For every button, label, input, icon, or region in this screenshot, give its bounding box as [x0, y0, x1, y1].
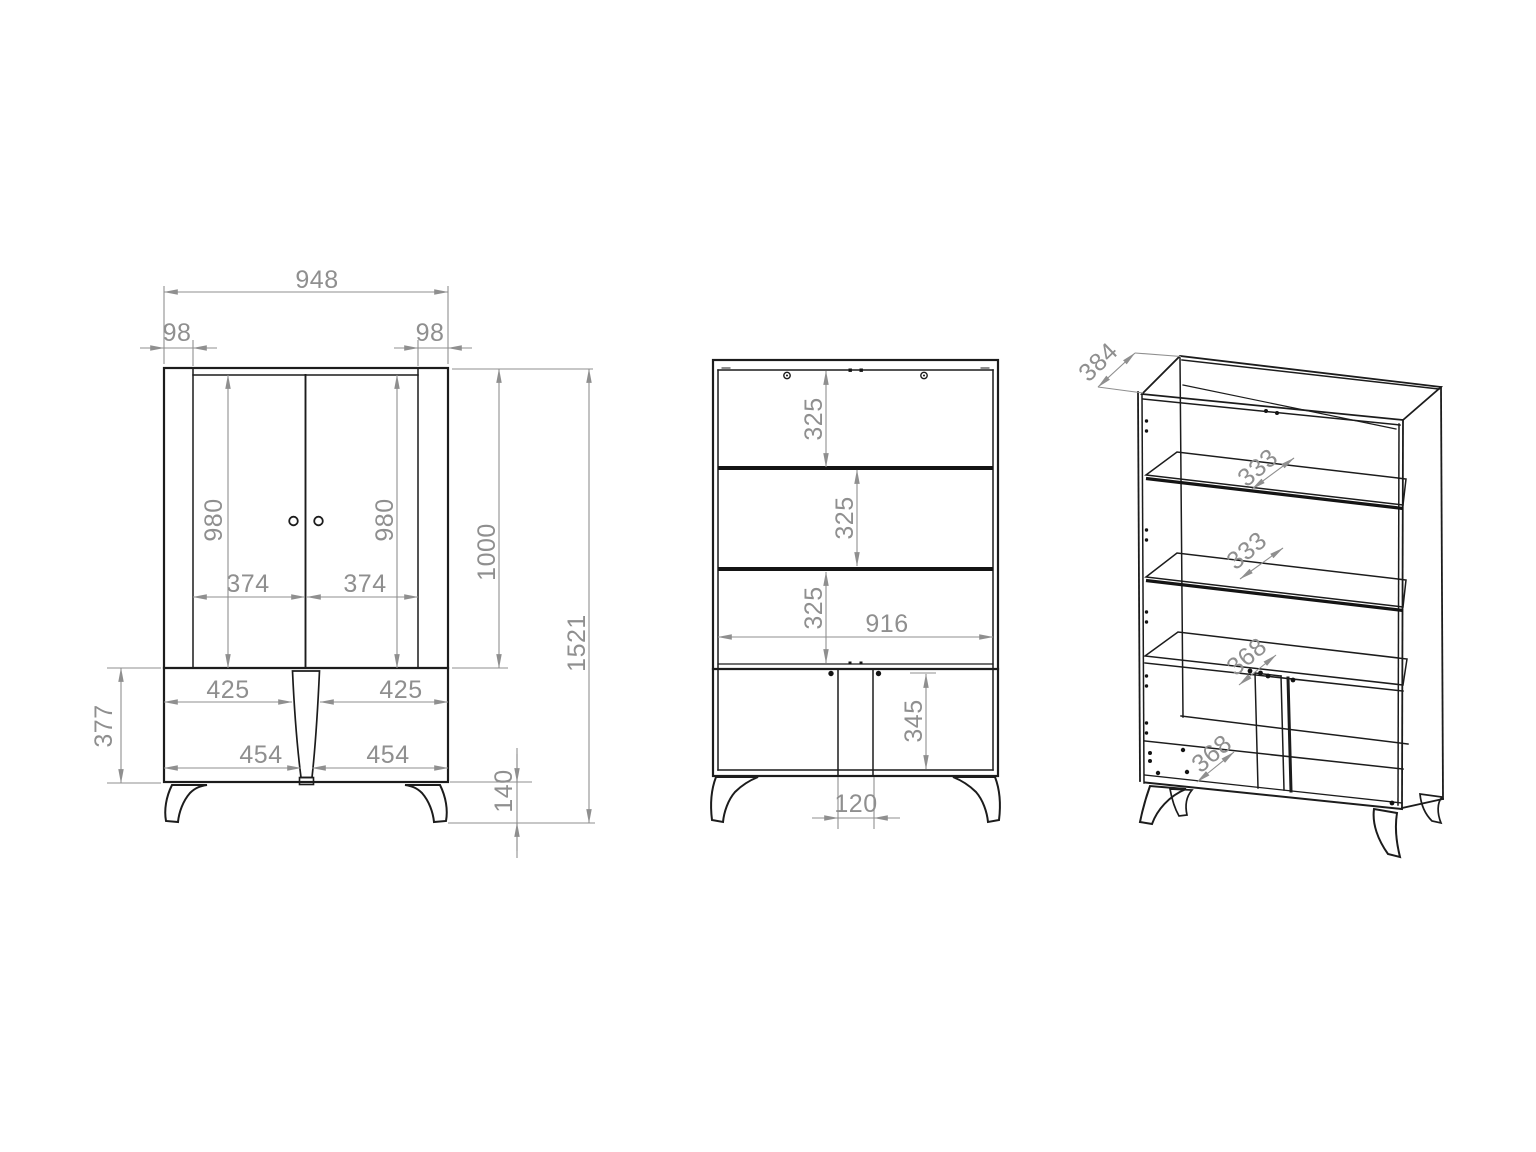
- dim-label-right-side: 98: [416, 319, 445, 347]
- iso-top-face: [1142, 356, 1441, 420]
- iso-bottom-panel-front-edge: [1145, 741, 1403, 769]
- iso-interior-back-left-edge: [1180, 358, 1183, 717]
- top-fitting-mark-left: [849, 369, 852, 372]
- dim-label-right-door-width: 374: [343, 570, 386, 598]
- iso-top-back-thickness-line: [1182, 360, 1439, 389]
- right-door-knob: [314, 517, 323, 526]
- dim-label-right-door-height: 980: [371, 498, 399, 541]
- iso-left-edge-inner: [1142, 395, 1144, 783]
- dim-label-overall-height: 1521: [563, 614, 591, 672]
- dim-label-base-right-opening: 425: [379, 676, 422, 704]
- internal-cabinet-body: [711, 360, 1000, 822]
- front-view: 948 98 98 980 980 374 374 1000 1521 425 …: [90, 266, 595, 858]
- dim-label-internal-width: 916: [865, 610, 908, 638]
- cabinet-drawing: 948 98 98 980 980 374 374 1000 1521 425 …: [0, 0, 1536, 1152]
- dim-label-base-height: 377: [90, 704, 118, 747]
- isometric-view: 384 333 333 368 368: [1073, 337, 1443, 857]
- cam-lock-right-dot: [923, 375, 925, 377]
- dim-label-shelf-gap-bottom: 325: [800, 586, 828, 629]
- dim-label-left-side: 98: [163, 319, 192, 347]
- dim-label-depth: 384: [1073, 337, 1124, 387]
- iso-back-right-leg: [1420, 794, 1442, 823]
- dim-label-divider-width: 120: [834, 790, 877, 818]
- dim-label-base-left-door: 454: [239, 741, 282, 769]
- iso-back-left-leg: [1170, 789, 1192, 816]
- iso-dimension-labels: 384 333 333 368 368: [1073, 337, 1283, 778]
- internal-dimension-labels: 325 325 325 916 345 120: [800, 397, 928, 818]
- front-left-leg: [165, 785, 207, 822]
- left-door-knob: [289, 517, 298, 526]
- dim-label-bottom-depth: 368: [1186, 729, 1237, 778]
- dim-label-base-left-opening: 425: [206, 676, 249, 704]
- iso-left-edge-outer: [1138, 392, 1140, 781]
- dim-label-base-right-door: 454: [366, 741, 409, 769]
- dim-label-overall-width: 948: [295, 266, 338, 294]
- iso-ceiling-dot-1: [1264, 409, 1268, 413]
- iso-front-left-leg: [1140, 786, 1186, 824]
- iso-divider-right-line: [1281, 676, 1284, 790]
- base-center-handle: [293, 671, 320, 778]
- dim-label-leg-height: 140: [490, 769, 518, 812]
- dim-label-shelf-gap-top: 325: [800, 397, 828, 440]
- dim-label-base-compartment: 345: [900, 699, 928, 742]
- iso-front-right-leg: [1374, 809, 1400, 857]
- iso-glass-shelf-lower-edge: [1146, 581, 1403, 611]
- iso-glass-shelf-lower: [1146, 553, 1406, 607]
- top-fitting-mark-right: [860, 369, 863, 372]
- dim-label-glass-lower-depth: 333: [1221, 526, 1272, 575]
- internal-view: 325 325 325 916 345 120: [711, 360, 1000, 829]
- iso-bottom-rail-bottom: [1145, 783, 1402, 810]
- iso-door-edge: [1288, 678, 1291, 791]
- shelf-fitting-mark-right: [860, 662, 863, 665]
- dim-label-glass-upper-depth: 333: [1232, 443, 1283, 492]
- iso-fixed-shelf-thickness: [1145, 663, 1403, 691]
- internal-dimension-lines: [718, 371, 993, 829]
- iso-glass-shelf-upper-edge: [1146, 479, 1403, 509]
- iso-front-right-edge-inner: [1398, 424, 1399, 805]
- iso-bottom-panel-dots: [1148, 748, 1189, 775]
- cam-lock-left-dot: [786, 375, 788, 377]
- hinge-dot-right: [876, 671, 881, 676]
- dim-label-shelf-gap-middle: 325: [831, 496, 859, 539]
- dim-label-left-door-height: 980: [200, 498, 228, 541]
- front-right-leg: [405, 785, 447, 822]
- iso-cabinet-body: [1138, 356, 1443, 857]
- hinge-dot-left: [828, 671, 833, 676]
- technical-drawing-canvas: 948 98 98 980 980 374 374 1000 1521 425 …: [0, 0, 1536, 1152]
- shelf-fitting-mark-left: [849, 662, 852, 665]
- iso-ceiling-dot-2: [1275, 411, 1279, 415]
- iso-back-right-edge: [1441, 387, 1443, 799]
- iso-divider-left-line: [1255, 673, 1258, 788]
- internal-right-leg: [953, 777, 1000, 822]
- iso-hinge-dots: [1248, 669, 1395, 806]
- dim-label-left-door-width: 374: [226, 570, 269, 598]
- internal-left-leg: [711, 777, 758, 822]
- dim-label-upper-height: 1000: [473, 523, 501, 581]
